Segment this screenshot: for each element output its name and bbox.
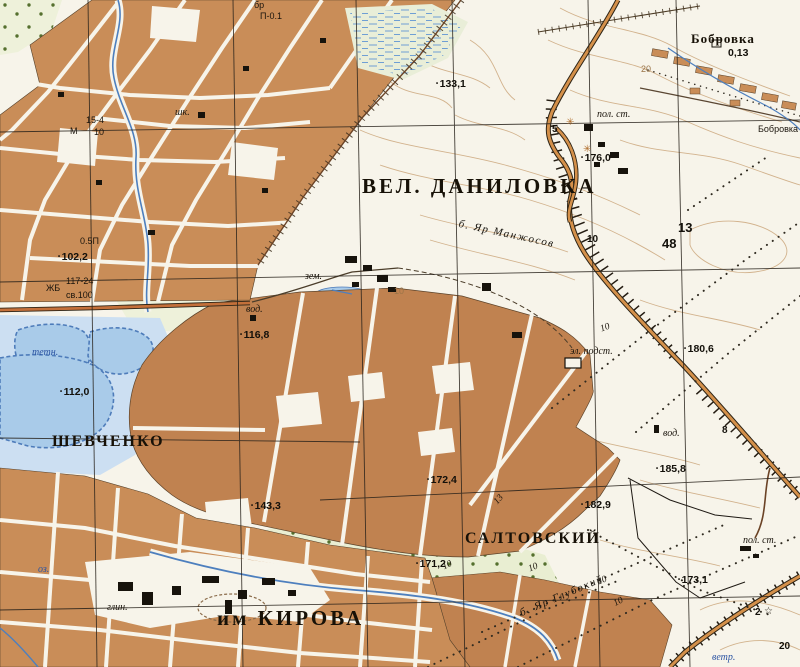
label-vel-danilovka: ВЕЛ. ДАНИЛОВКА: [362, 174, 597, 199]
ravine-yar-manzhosov: б. Яр Манжосов: [458, 218, 556, 250]
elevation-172-4: 172,4: [427, 474, 457, 486]
windmill-icon-a: ✳: [566, 117, 574, 128]
label-bobrovka-stream: Бобровка: [758, 124, 798, 134]
grid-number-13: 13: [678, 220, 692, 235]
contour-number-20: 20: [641, 64, 651, 74]
note-vod-east: вод.: [663, 428, 680, 439]
note-vod-west: вод.: [246, 304, 263, 315]
bridge-15-4: 15-4: [86, 115, 104, 125]
note-pol-st-north: пол. ст.: [597, 109, 630, 120]
grid-number-48: 48: [662, 236, 676, 251]
bridge-material: М: [70, 126, 78, 136]
label-im-kirova: им КИРОВА: [217, 606, 364, 631]
note-el-podst: эл. подст.: [570, 346, 613, 357]
treeline-10-a: 10: [599, 322, 611, 335]
bridge-sv-100: св.100: [66, 290, 93, 300]
bridge-load: 10: [94, 127, 104, 137]
label-shevchenko: ШЕВЧЕНКО: [52, 433, 165, 451]
elevation-173-1: 173,1: [678, 574, 708, 586]
elevation-112-0: 112,0: [60, 386, 89, 398]
bridge-117-24: 117-24: [66, 276, 93, 286]
elevation-180-6: 180,6: [684, 343, 714, 355]
road-number-2: 2: [755, 607, 761, 618]
elevation-102-2: 102,2: [58, 251, 88, 263]
note-blue-ozero: оз.: [38, 564, 49, 575]
elevation-182-9: 182,9: [581, 499, 611, 511]
treeline-10-e: 10: [612, 596, 625, 609]
contour-number-10: 10: [394, 286, 404, 296]
note-shkola: шк.: [175, 107, 190, 118]
windmill-icon-b: ✳: [583, 144, 591, 155]
label-saltovskiy: САЛТОВСКИЙ: [465, 530, 601, 548]
elevation-143-3: 143,3: [251, 500, 281, 512]
note-blue-ponds: тетн.: [32, 347, 58, 358]
map-labels-layer: ВЕЛ. ДАНИЛОВКАим КИРОВАШЕВЧЕНКОСАЛТОВСКИ…: [0, 0, 800, 667]
star-icon: ☆: [764, 606, 773, 617]
label-bobrovka: Бобровка: [691, 31, 755, 47]
treeline-10-c: 10: [527, 561, 540, 574]
elevation-185-8: 185,8: [656, 463, 686, 475]
note-05p: 0.5П: [80, 236, 99, 246]
road-number-8: 8: [722, 425, 728, 436]
note-brod-value: П-0.1: [260, 11, 282, 21]
note-glin: глин.: [107, 602, 128, 613]
treeline-10-b: 10: [441, 559, 454, 572]
topographic-map: ВЕЛ. ДАНИЛОВКАим КИРОВАШЕВЧЕНКОСАЛТОВСКИ…: [0, 0, 800, 667]
note-pol-st-southeast: пол. ст.: [743, 535, 776, 546]
elevation-133-1: 133,1: [436, 78, 466, 90]
note-brod: бр: [254, 0, 264, 10]
depth-0-13: 0,13: [728, 47, 748, 59]
bridge-zhb: ЖБ: [46, 283, 60, 293]
road-number-5: 5: [552, 124, 558, 135]
road-number-20: 20: [779, 641, 790, 652]
note-blue-vetr: ветр.: [712, 652, 735, 663]
ravine-yar-glubokiy: б. Яр Глубокий: [518, 573, 605, 619]
elevation-116-8: 116,8: [240, 329, 269, 341]
note-zem: зем.: [305, 271, 322, 282]
road-number-10: 10: [587, 234, 598, 245]
treeline-13: 13: [492, 493, 506, 507]
